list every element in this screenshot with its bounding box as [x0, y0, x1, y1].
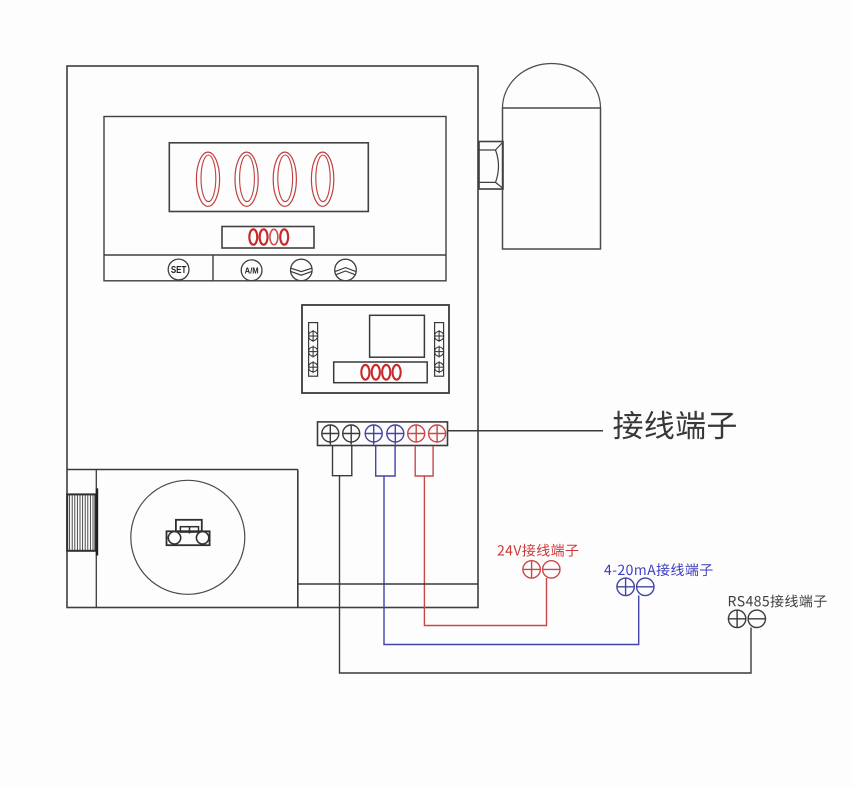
svg-text:SET: SET — [171, 265, 187, 276]
svg-text:A/M: A/M — [245, 265, 259, 275]
